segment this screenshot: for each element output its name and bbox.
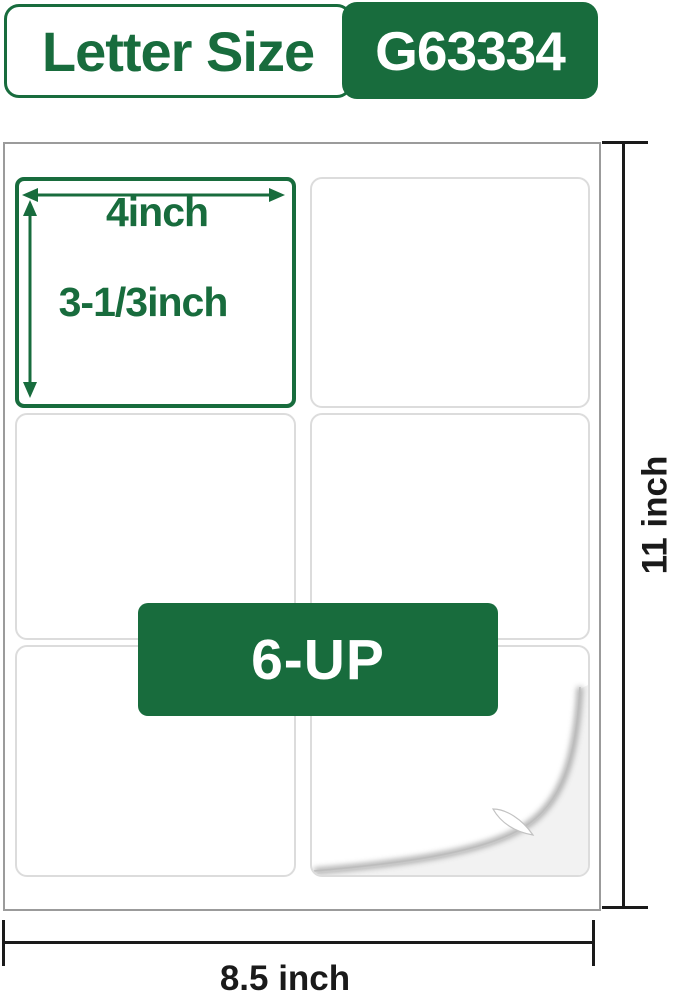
highlighted-label-cell: 4inch 3-1/3inch: [15, 177, 296, 408]
sheet-width-label: 8.5 inch: [175, 959, 395, 999]
label-sheet: 4inch 3-1/3inch 6-UP: [3, 142, 601, 911]
label-cell: [310, 177, 590, 408]
label-height-text: 3-1/3inch: [23, 279, 263, 326]
width-dimension-cap-right: [592, 920, 595, 966]
six-up-text: 6-UP: [251, 627, 385, 693]
height-dimension-cap-top: [602, 141, 648, 144]
letter-size-text: Letter Size: [42, 19, 314, 84]
height-dimension-cap-bottom: [602, 906, 648, 909]
label-width-text: 4inch: [51, 189, 263, 236]
width-dimension-line: [3, 941, 594, 944]
model-number-badge: G63334: [342, 2, 598, 99]
six-up-badge: 6-UP: [138, 603, 498, 716]
sheet-height-label: 11 inch: [631, 437, 679, 593]
letter-size-label: Letter Size: [4, 4, 352, 98]
width-dimension-cap-left: [2, 920, 5, 966]
height-dimension-line: [622, 141, 625, 909]
model-number-text: G63334: [375, 19, 565, 83]
